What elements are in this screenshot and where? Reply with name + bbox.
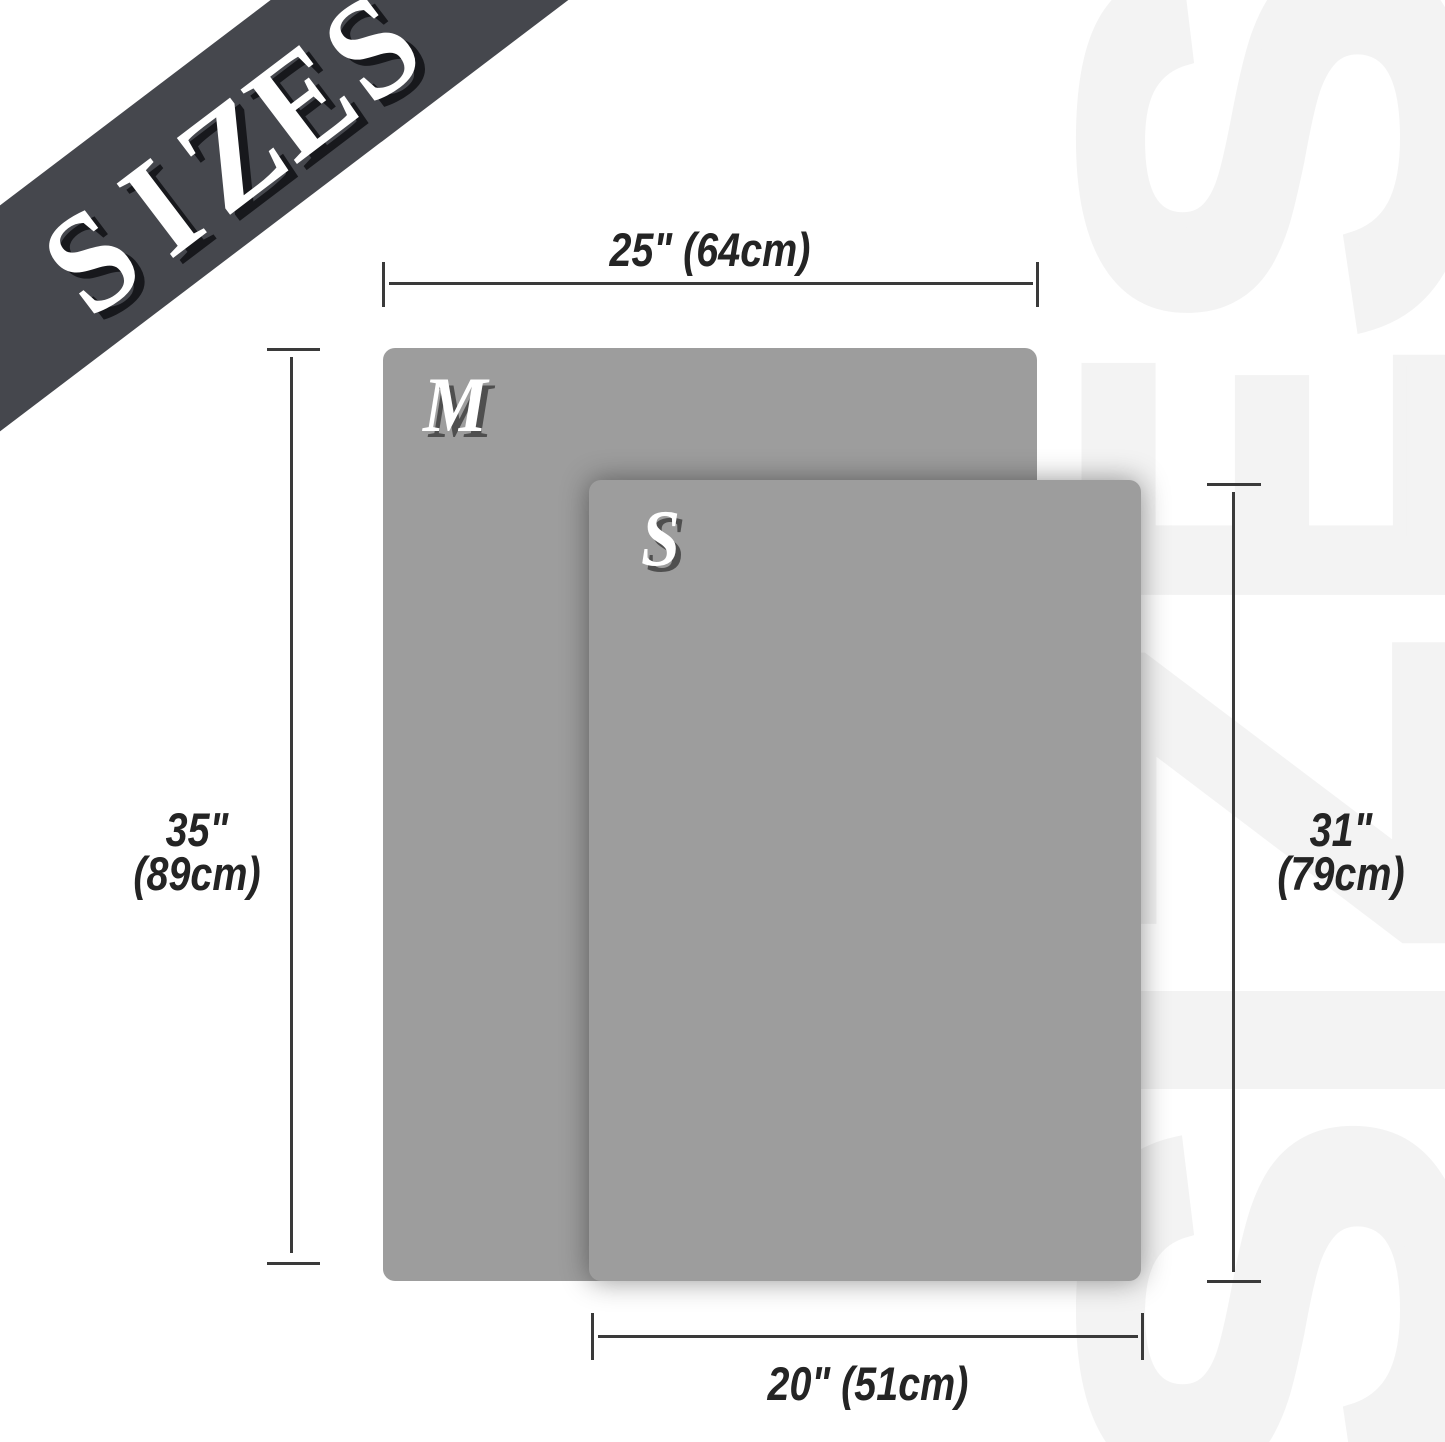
svg-text:S: S: [972, 0, 1445, 342]
